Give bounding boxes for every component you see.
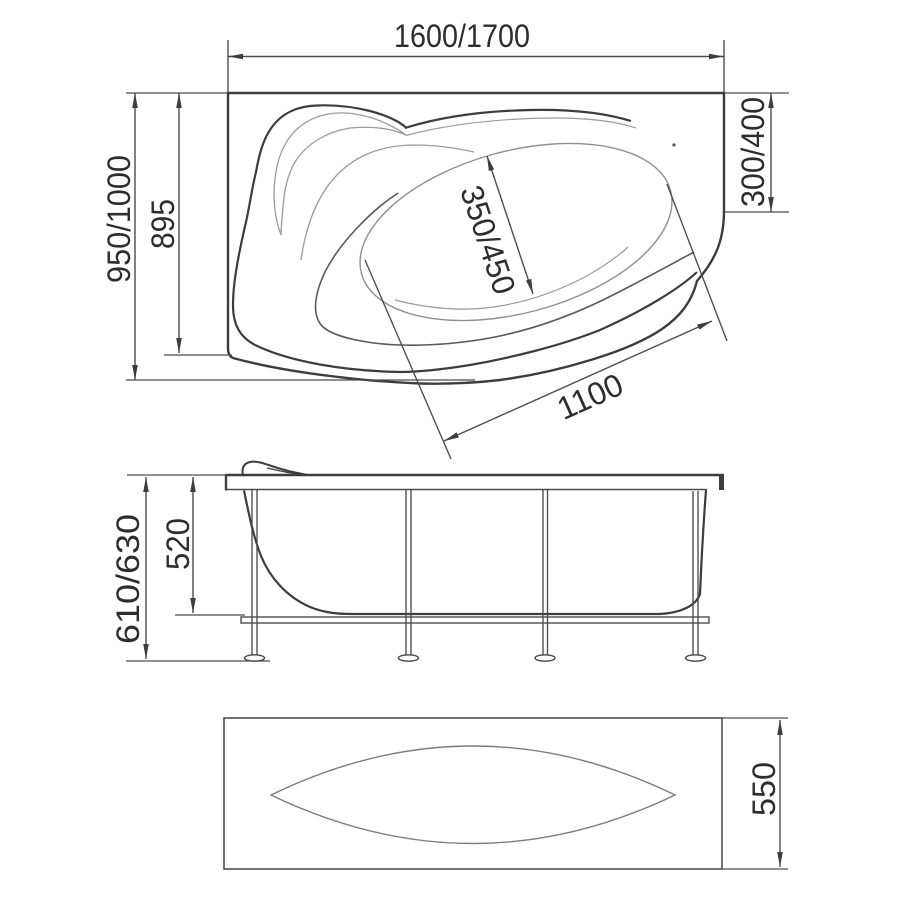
svg-text:950/1000: 950/1000 [101, 155, 137, 283]
svg-text:520: 520 [160, 518, 196, 570]
svg-text:550: 550 [746, 762, 782, 816]
svg-text:1600/1700: 1600/1700 [394, 18, 530, 54]
svg-text:610/630: 610/630 [110, 514, 146, 644]
svg-text:895: 895 [145, 199, 181, 249]
svg-text:300/400: 300/400 [735, 97, 771, 207]
